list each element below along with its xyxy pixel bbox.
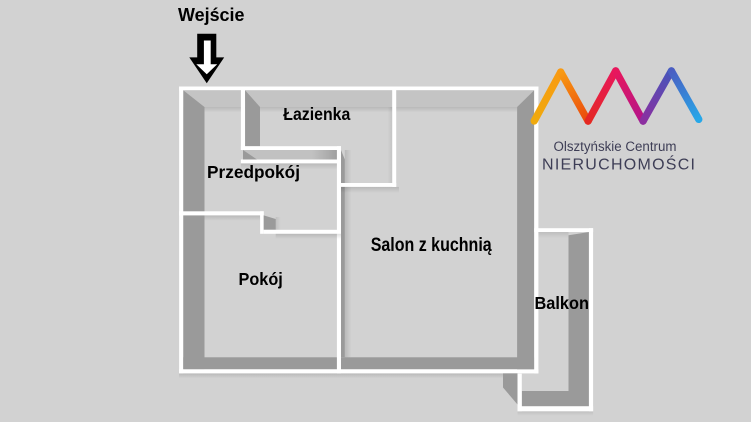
svg-text:Wejście: Wejście (178, 5, 245, 25)
svg-text:Przedpokój: Przedpokój (207, 162, 300, 182)
svg-text:NIERUCHOMOŚCI: NIERUCHOMOŚCI (542, 155, 695, 174)
svg-text:Balkon: Balkon (535, 293, 590, 313)
svg-text:Salon z kuchnią: Salon z kuchnią (371, 235, 492, 256)
svg-text:Olsztyńskie Centrum: Olsztyńskie Centrum (554, 139, 677, 154)
svg-text:Pokój: Pokój (239, 269, 283, 289)
svg-text:Łazienka: Łazienka (283, 104, 350, 124)
